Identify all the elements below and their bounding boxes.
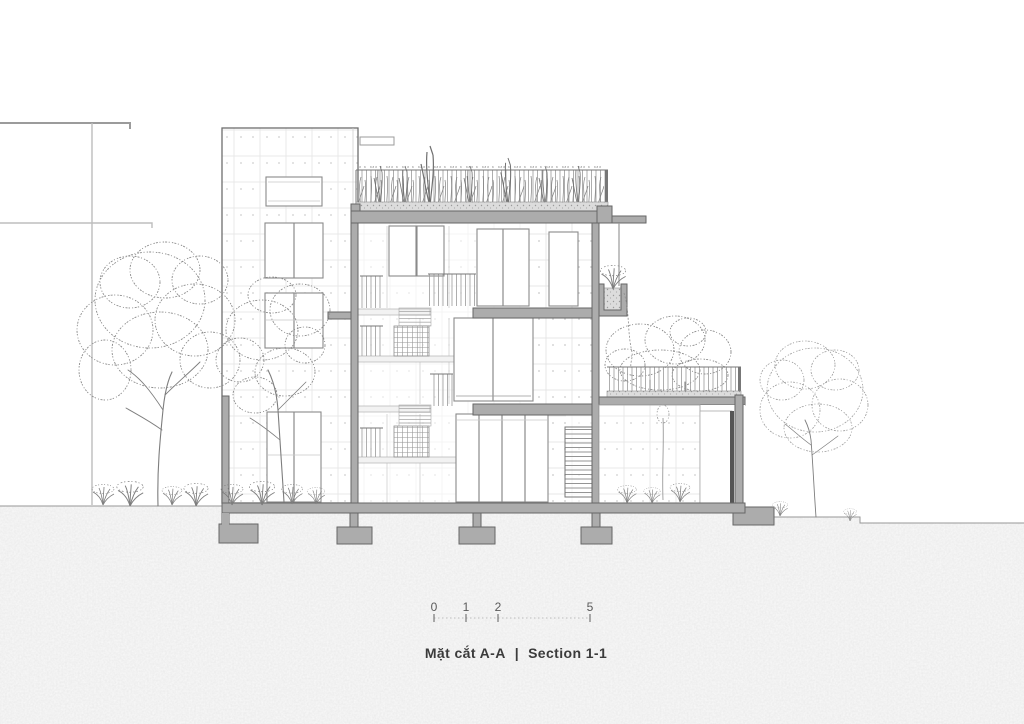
floor-slab-2 (473, 308, 599, 318)
footing-3 (459, 527, 495, 544)
facade-planter (599, 265, 632, 368)
footing-4 (581, 527, 612, 544)
section-title-en: Section 1-1 (528, 645, 607, 661)
section-drawing: 0 1 2 5 Mặt cắt A-A|Section 1-1 (0, 0, 1024, 724)
stair-flight-cut (394, 426, 429, 457)
wall-panel (532, 318, 592, 404)
section-title-vi: Mặt cắt A-A (425, 644, 506, 661)
wing-wall (599, 405, 700, 503)
wing-door-opening (700, 411, 732, 503)
scale-label-2: 2 (495, 600, 502, 614)
stair-door (389, 226, 416, 276)
architectural-section-sheet: 0 1 2 5 Mặt cắt A-A|Section 1-1 (0, 0, 1024, 724)
roof-slab (351, 211, 612, 223)
main-building (351, 211, 599, 505)
louver-door (565, 427, 592, 497)
retaining-wall (735, 395, 743, 509)
ground (0, 498, 1024, 724)
footing-2 (337, 527, 372, 544)
ground-slab (222, 503, 745, 513)
neighbor-building (0, 123, 152, 505)
floor-slab-3 (473, 404, 599, 415)
left-cut-wall (351, 211, 358, 505)
right-cut-wall (592, 222, 599, 505)
left-tree (77, 242, 240, 506)
tower-band-window (266, 177, 322, 206)
section-title: Mặt cắt A-A|Section 1-1 (425, 644, 607, 661)
scale-label-1: 1 (463, 600, 470, 614)
section-title-divider: | (515, 645, 519, 661)
wing-roof-soil (607, 391, 741, 397)
wing-roof-slab (599, 397, 745, 405)
stair-treads (399, 405, 431, 426)
roof-canopy-slab (612, 216, 646, 223)
roof-parapet (597, 206, 612, 223)
roof-planting (358, 166, 604, 206)
stair-treads (399, 308, 431, 326)
door-floor3 (549, 232, 578, 306)
scale-label-0: 0 (431, 600, 438, 614)
stair-flight-cut (394, 326, 429, 356)
ground-texture (0, 498, 1024, 724)
footing-1 (219, 524, 258, 543)
right-tree (760, 341, 868, 517)
scale-label-5: 5 (587, 600, 594, 614)
tower-roof-beam (360, 137, 394, 145)
wall-panel (547, 414, 566, 503)
stair-door (417, 226, 444, 276)
roof-soil (356, 202, 608, 211)
wing-door-jamb (730, 411, 734, 503)
